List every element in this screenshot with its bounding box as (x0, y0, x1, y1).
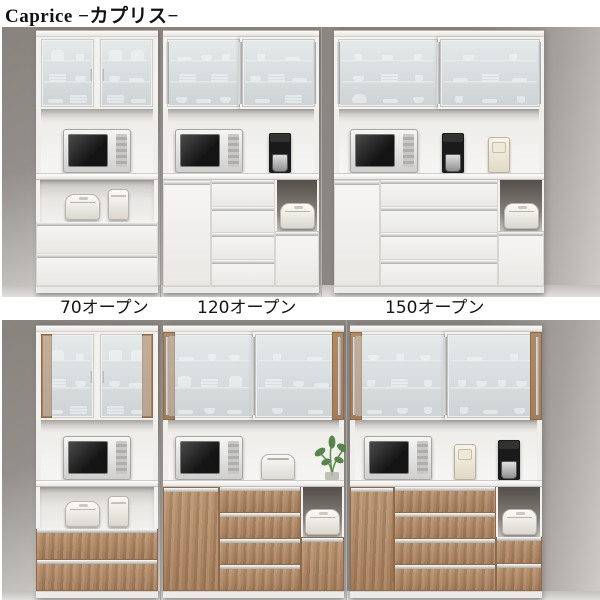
cup (424, 380, 432, 387)
bowl (109, 76, 120, 82)
plate-stack (107, 406, 124, 414)
plate-stack (211, 74, 228, 82)
plate (308, 410, 323, 414)
small-drawer (496, 537, 542, 564)
right-column (496, 487, 542, 591)
cabinet-150-white (334, 30, 544, 293)
cup (257, 54, 265, 61)
door-handle-bar (239, 42, 242, 104)
glass-shelf (358, 387, 442, 390)
microwave (175, 129, 243, 173)
dish-row (359, 379, 439, 387)
dish-row (104, 381, 149, 387)
dish-row (104, 95, 149, 103)
bowl (75, 76, 86, 82)
sliding-glass-hutch (350, 332, 542, 420)
cabinet-door (498, 231, 544, 286)
pot (229, 376, 242, 387)
bowl (204, 408, 215, 414)
countertop (334, 173, 544, 180)
drawer-handle (497, 537, 541, 541)
plate (467, 357, 482, 361)
microwave (63, 436, 131, 480)
drawer-handle (395, 513, 495, 517)
drawer-handle (220, 513, 300, 517)
bowl (250, 76, 261, 82)
drawer-handle (381, 233, 497, 237)
frosted-glass (442, 41, 538, 105)
rice-cooker (504, 203, 539, 229)
glass-shelf (44, 60, 91, 63)
size-label-120: 120オープン (197, 297, 296, 320)
dish-row (104, 406, 149, 414)
cup (460, 407, 468, 414)
drawer-handle (37, 560, 157, 564)
cabinet-door (350, 487, 394, 591)
bowl (463, 55, 474, 61)
open-counter-space (350, 420, 542, 480)
dish-row (104, 350, 149, 361)
sliding-glass-door-right (438, 37, 542, 109)
dish-row (260, 354, 335, 361)
plate-stack (107, 95, 124, 103)
sliding-glass-door-left (165, 332, 255, 420)
drawer-handle (212, 260, 274, 264)
bowl (514, 408, 525, 414)
glass-shelf (44, 387, 91, 390)
photo-row-walnut (2, 320, 598, 600)
cup (273, 354, 281, 361)
door-handle-bar (538, 42, 541, 104)
glass-shelf (451, 360, 535, 363)
right-column (498, 180, 544, 286)
dish-row (104, 76, 149, 82)
dish-row (359, 354, 439, 361)
frosted-glass (169, 336, 251, 416)
drawer (394, 539, 496, 565)
drawer-handle (212, 207, 274, 211)
right-column (301, 487, 344, 591)
drawer (36, 560, 158, 591)
glass-shelf (444, 81, 536, 84)
glass-shelf (44, 81, 91, 84)
coffee-maker (269, 133, 291, 173)
glass-hutch (36, 332, 158, 420)
rice-cooker (502, 509, 537, 535)
plate-stack (381, 74, 398, 82)
dish-row (45, 74, 90, 82)
plate-stack (265, 379, 282, 387)
plate (131, 410, 146, 414)
dish-row (45, 379, 90, 387)
plate (177, 57, 192, 61)
base-cabinet (350, 487, 542, 591)
cabinet-top-edge (350, 325, 542, 332)
drawer-handle (395, 565, 495, 569)
frosted-glass (102, 41, 151, 105)
drawer-handle (37, 254, 157, 258)
drawer (219, 539, 301, 565)
frosted-glass (169, 41, 238, 105)
drawer-handle (220, 565, 300, 569)
plate (307, 357, 322, 361)
frosted-glass (340, 41, 436, 105)
cabinet-door (275, 231, 319, 286)
drawer (380, 233, 498, 260)
countertop (350, 480, 542, 487)
glass-shelf (170, 60, 236, 63)
bowl (476, 381, 487, 387)
door-handle-bar (444, 337, 447, 415)
bowl (293, 381, 304, 387)
microwave (63, 129, 131, 173)
photo-70-walnut (2, 320, 160, 600)
drawer-stack (219, 487, 301, 591)
plinth (36, 286, 158, 293)
drawer (380, 180, 498, 207)
plate (314, 383, 329, 387)
plate-stack (201, 379, 218, 387)
cabinet-150-walnut (350, 325, 542, 598)
door-handle-bar (252, 337, 255, 415)
drawer-handle (212, 233, 274, 237)
door-handle (164, 488, 218, 492)
appliance-cubby (277, 180, 317, 231)
base-cabinet (163, 180, 319, 286)
drawer-handle (395, 487, 495, 491)
dish-row (452, 380, 532, 387)
plate-stack (391, 379, 408, 387)
bowl (353, 76, 364, 82)
cup (354, 54, 362, 61)
dish-row (104, 50, 149, 61)
drawer-handle (381, 260, 497, 264)
drawer-stack (380, 180, 498, 286)
drawer (211, 260, 275, 287)
glass-shelf (103, 60, 150, 63)
bowl (109, 381, 120, 387)
plate-stack (70, 406, 87, 414)
plinth (36, 591, 158, 598)
drawer-stack (394, 487, 496, 591)
countertop (36, 480, 158, 487)
glass-shelf (444, 60, 536, 63)
sliding-glass-door-left (352, 332, 447, 420)
plinth (350, 591, 542, 598)
sliding-glass-door-left (336, 37, 440, 109)
dish-row (359, 407, 439, 414)
dish-row (45, 350, 90, 361)
cup (76, 354, 84, 361)
frosted-glass (257, 336, 339, 416)
plate (48, 99, 63, 103)
pot (178, 376, 191, 387)
size-label-70: 70オープン (60, 297, 149, 320)
bowl (397, 408, 408, 414)
plate (482, 99, 497, 103)
bowl (229, 355, 240, 361)
countertop (163, 173, 319, 180)
door-handle (302, 538, 343, 542)
cup (415, 75, 423, 82)
door-handle-bar (313, 42, 316, 104)
dish-row (45, 406, 90, 414)
cup (458, 380, 466, 387)
cabinet-70-white (36, 30, 158, 293)
dish-row (45, 95, 90, 103)
thermo-pot (108, 189, 129, 220)
plate (129, 383, 144, 387)
hinged-glass-door-left (39, 37, 96, 109)
glass-shelf (342, 81, 434, 84)
dish-row (452, 407, 532, 414)
cabinet-top-edge (163, 30, 319, 37)
pot (51, 350, 64, 361)
dish-row (172, 74, 236, 82)
open-counter-space (36, 420, 158, 480)
cabinet-top-edge (334, 30, 544, 37)
sliding-glass-door-left (165, 37, 242, 109)
glass-shelf (171, 387, 249, 390)
plate (48, 410, 63, 414)
toaster (261, 454, 295, 480)
drawer-handle (220, 539, 300, 543)
drawer-stack (211, 180, 275, 286)
plate (255, 99, 270, 103)
cabinet-120-walnut (163, 325, 344, 598)
frosted-glass (244, 41, 313, 105)
small-drawer (496, 564, 542, 591)
open-shelf (40, 180, 154, 222)
cup (517, 96, 525, 103)
plate (383, 99, 398, 103)
drawer (219, 487, 301, 513)
frosted-glass (43, 41, 92, 105)
plinth (163, 591, 344, 598)
appliance-cubby (498, 487, 540, 537)
dish-row (344, 94, 432, 103)
plate (129, 78, 144, 82)
drawer (394, 565, 496, 591)
drawer (36, 529, 158, 560)
cup (208, 354, 216, 361)
size-label-150: 150オープン (385, 297, 484, 320)
pot (109, 350, 122, 361)
photo-70-white (2, 27, 160, 297)
bowl (420, 355, 431, 361)
sliding-glass-door-right (240, 37, 317, 109)
bowl (382, 55, 393, 61)
dish-row (172, 354, 247, 361)
bowl (368, 355, 379, 361)
base-cabinet (36, 487, 158, 591)
cabinet-70-walnut (36, 325, 158, 598)
drawer (211, 180, 275, 207)
door-handle-bar (536, 337, 539, 415)
plate (196, 99, 211, 103)
photo-150-walnut (346, 320, 600, 600)
houseplant (313, 432, 346, 480)
teapot (352, 94, 367, 103)
microwave (350, 129, 418, 173)
plate (512, 78, 527, 82)
drawer (380, 260, 498, 287)
plinth (163, 286, 319, 293)
cabinet-top-edge (163, 325, 344, 332)
dish-row (344, 54, 432, 61)
cup (455, 96, 463, 103)
hinged-glass-door-left (39, 332, 96, 420)
countertop (36, 173, 158, 180)
microwave (175, 436, 243, 480)
glass-shelf (44, 360, 91, 363)
countertop (163, 480, 344, 487)
coffee-maker (498, 440, 520, 480)
base-cabinet (36, 180, 158, 286)
drawer-handle (212, 180, 274, 184)
photo-120-white (160, 27, 321, 297)
bowl (272, 408, 283, 414)
drawer-handle (381, 180, 497, 184)
drawer (36, 222, 158, 254)
size-label-row: 70オープン 120オープン 150オープン (0, 297, 600, 320)
drawer (394, 487, 496, 513)
plate-stack (268, 74, 285, 82)
product-photo-collage: Caprice −カプリス− (0, 0, 600, 600)
frosted-glass (449, 336, 536, 416)
cup (510, 354, 518, 361)
drawer-handle (497, 564, 541, 568)
sliding-glass-door-right (445, 332, 540, 420)
cup (76, 54, 84, 61)
pot (109, 50, 122, 61)
plate (227, 410, 242, 414)
cup (498, 380, 506, 387)
drawer (394, 513, 496, 539)
plate (131, 99, 146, 103)
dish-row (260, 379, 335, 387)
rice-cooker (65, 501, 100, 527)
cabinet-top-edge (36, 30, 158, 37)
plate-stack (482, 74, 499, 82)
door-handle-bar (437, 42, 440, 104)
open-shelf (40, 487, 154, 529)
sliding-glass-door-right (253, 332, 343, 420)
dish-row (446, 54, 534, 61)
sliding-glass-hutch (163, 37, 319, 109)
glass-shelf (103, 81, 150, 84)
plate (285, 57, 300, 61)
photo-row-white (2, 27, 598, 297)
plate (179, 357, 194, 361)
glass-shelf (245, 81, 311, 84)
rice-cooker (305, 509, 340, 535)
rice-cooker (65, 194, 100, 220)
plate (367, 410, 382, 414)
pot (51, 50, 64, 61)
bowl (516, 381, 527, 387)
dish-row (260, 408, 335, 414)
plate-stack (49, 379, 66, 387)
thermo-pot (108, 496, 129, 527)
plate-stack (285, 95, 302, 103)
dish-row (247, 95, 311, 103)
plate (178, 410, 193, 414)
drawer (36, 254, 158, 286)
open-counter-space (163, 109, 319, 173)
bowl (176, 97, 187, 103)
cup (414, 54, 422, 61)
glass-shelf (342, 60, 434, 63)
plate (483, 410, 498, 414)
door-handle (335, 181, 379, 185)
dish-row (172, 408, 247, 414)
base-cabinet (163, 487, 344, 591)
drawer (380, 207, 498, 234)
page-title: Caprice −カプリス− (5, 1, 179, 28)
cup (424, 407, 432, 414)
plate-stack (70, 95, 87, 103)
frosted-glass (102, 336, 151, 416)
appliance-cubby (500, 180, 542, 231)
drawer-handle (37, 222, 157, 226)
bowl (413, 97, 424, 103)
glass-shelf (103, 387, 150, 390)
door-handle (164, 181, 210, 185)
food-processor (488, 137, 510, 173)
bowl (75, 381, 86, 387)
glass-hutch (36, 37, 158, 109)
drawer-handle (220, 487, 300, 491)
frosted-glass (356, 336, 443, 416)
dish-row (247, 54, 311, 61)
cabinet-door (334, 180, 380, 286)
cabinet-door (301, 537, 344, 591)
glass-shelf (258, 360, 336, 363)
microwave (364, 436, 432, 480)
bowl (201, 55, 212, 61)
drawer-handle (381, 207, 497, 211)
plate-stack (49, 74, 66, 82)
dish-row (344, 74, 432, 82)
open-counter-space (36, 109, 158, 173)
plate (453, 78, 468, 82)
cup (367, 380, 375, 387)
right-column (275, 180, 319, 286)
cup (222, 54, 230, 61)
drawer (219, 513, 301, 539)
door-handle (276, 232, 318, 236)
cup (509, 54, 517, 61)
rice-cooker (280, 203, 315, 229)
drawer-handle (37, 529, 157, 533)
photo-150-white (321, 27, 600, 297)
glass-shelf (451, 387, 535, 390)
hinged-glass-door-right (98, 37, 155, 109)
drawer (211, 207, 275, 234)
plate (292, 78, 307, 82)
plate-stack (179, 74, 196, 82)
glass-shelf (171, 360, 249, 363)
open-counter-space (334, 109, 544, 173)
dish-row (172, 97, 236, 103)
open-counter-space (163, 420, 344, 480)
drawer (211, 233, 275, 260)
drawer-handle (395, 539, 495, 543)
door-handle (499, 232, 543, 236)
cabinet-top-edge (36, 325, 158, 332)
dish-row (45, 50, 90, 61)
